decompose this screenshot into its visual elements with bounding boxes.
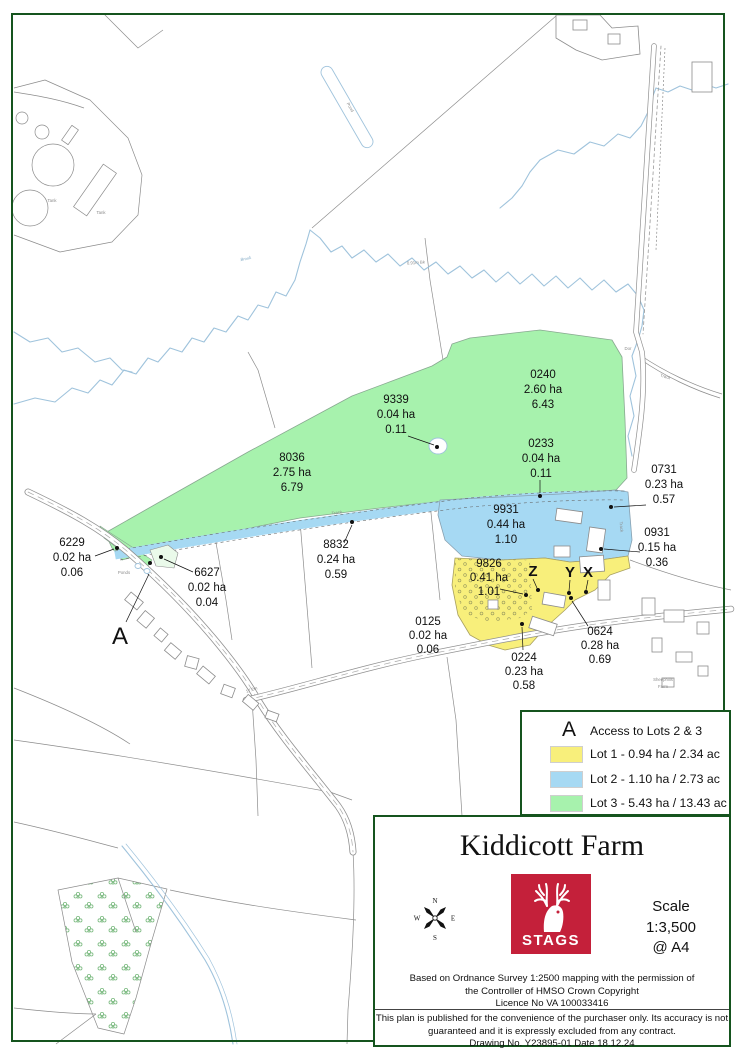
compass-e: E bbox=[451, 915, 455, 923]
plan-title: Kiddicott Farm bbox=[375, 829, 729, 863]
main-brook bbox=[14, 230, 310, 404]
os-attribution: Based on Ordnance Survey 1:2500 mapping … bbox=[375, 973, 729, 1011]
disclaimer: This plan is published for the convenien… bbox=[375, 1013, 729, 1051]
long-pond bbox=[319, 64, 375, 150]
sheephills-label-1: Sheephills bbox=[653, 677, 673, 682]
title-block: Kiddicott Farm N E S W bbox=[373, 815, 731, 1047]
marker-Z: Z bbox=[528, 563, 537, 580]
legend-access-row: A Access to Lots 2 & 3 bbox=[522, 714, 729, 736]
parcel-label-6627: 66270.02 ha0.04 bbox=[188, 567, 227, 609]
attribution-line-1: Based on Ordnance Survey 1:2500 mapping … bbox=[375, 973, 729, 986]
attribution-line-2: the Controller of HMSO Crown Copyright bbox=[375, 986, 729, 999]
lot2-label: Lot 2 - 1.10 ha / 2.73 ac bbox=[590, 772, 720, 786]
lot1-label: Lot 1 - 0.94 ha / 2.34 ac bbox=[590, 747, 720, 761]
compass-w: W bbox=[414, 915, 421, 923]
lot1-swatch bbox=[550, 746, 583, 763]
disclaimer-line-2: guaranteed and it is expressly excluded … bbox=[375, 1026, 729, 1039]
access-label: Access to Lots 2 & 3 bbox=[590, 724, 702, 738]
farm-sale-plan-page: 02402.60 ha6.43 93390.04 ha0.11 80362.75… bbox=[0, 0, 738, 1058]
access-marker-letter: A bbox=[554, 718, 584, 742]
tank-label-1: Tank bbox=[47, 198, 57, 203]
scale-value: 1:3,500 bbox=[615, 918, 727, 939]
parcel-label-0731: 07310.23 ha0.57 bbox=[645, 464, 684, 506]
parcel-label-0931: 09310.15 ha0.36 bbox=[638, 527, 677, 569]
disclaimer-line-3: Drawing No. Y23895-01 Date 18.12.24 bbox=[375, 1038, 729, 1051]
tank-label-2: Tank bbox=[96, 210, 106, 215]
brook-label: Brook bbox=[240, 255, 253, 262]
bank-height-label: 0.91m Bk bbox=[407, 259, 426, 265]
scale-label: Scale bbox=[615, 897, 727, 918]
parcel-label-6229: 62290.02 ha0.06 bbox=[53, 537, 92, 579]
compass-n: N bbox=[432, 897, 437, 905]
ponds-label: Ponds bbox=[118, 570, 130, 575]
track-label-3: Track bbox=[660, 373, 672, 381]
lot3-label: Lot 3 - 5.43 ha / 13.43 ac bbox=[590, 796, 727, 810]
scale-sheet: @ A4 bbox=[615, 938, 727, 959]
disclaimer-line-1: This plan is published for the convenien… bbox=[375, 1013, 729, 1026]
scale-block: Scale 1:3,500 @ A4 bbox=[615, 897, 727, 959]
lot3-swatch bbox=[550, 795, 583, 812]
stags-logo: STAGS bbox=[511, 874, 591, 954]
lot2-swatch bbox=[550, 771, 583, 788]
track-label-2: Track bbox=[619, 521, 625, 533]
marker-A: A bbox=[112, 623, 128, 650]
compass-s: S bbox=[433, 934, 437, 941]
marker-X: X bbox=[583, 564, 593, 581]
legend-box: A Access to Lots 2 & 3 Lot 1 - 0.94 ha /… bbox=[520, 710, 731, 816]
parcel-label-0624: 06240.28 ha0.69 bbox=[581, 626, 620, 666]
parcel-label-8832: 88320.24 ha0.59 bbox=[317, 539, 356, 581]
sheephills-label-2: Farm bbox=[658, 684, 668, 689]
parcel-label-0224: 02240.23 ha0.58 bbox=[505, 652, 544, 692]
stags-logo-text: STAGS bbox=[522, 932, 580, 949]
marker-Y: Y bbox=[565, 564, 575, 581]
title-block-divider bbox=[375, 1009, 729, 1010]
dor-label: Dor bbox=[625, 346, 632, 351]
compass-rose: N E S W bbox=[413, 895, 457, 941]
